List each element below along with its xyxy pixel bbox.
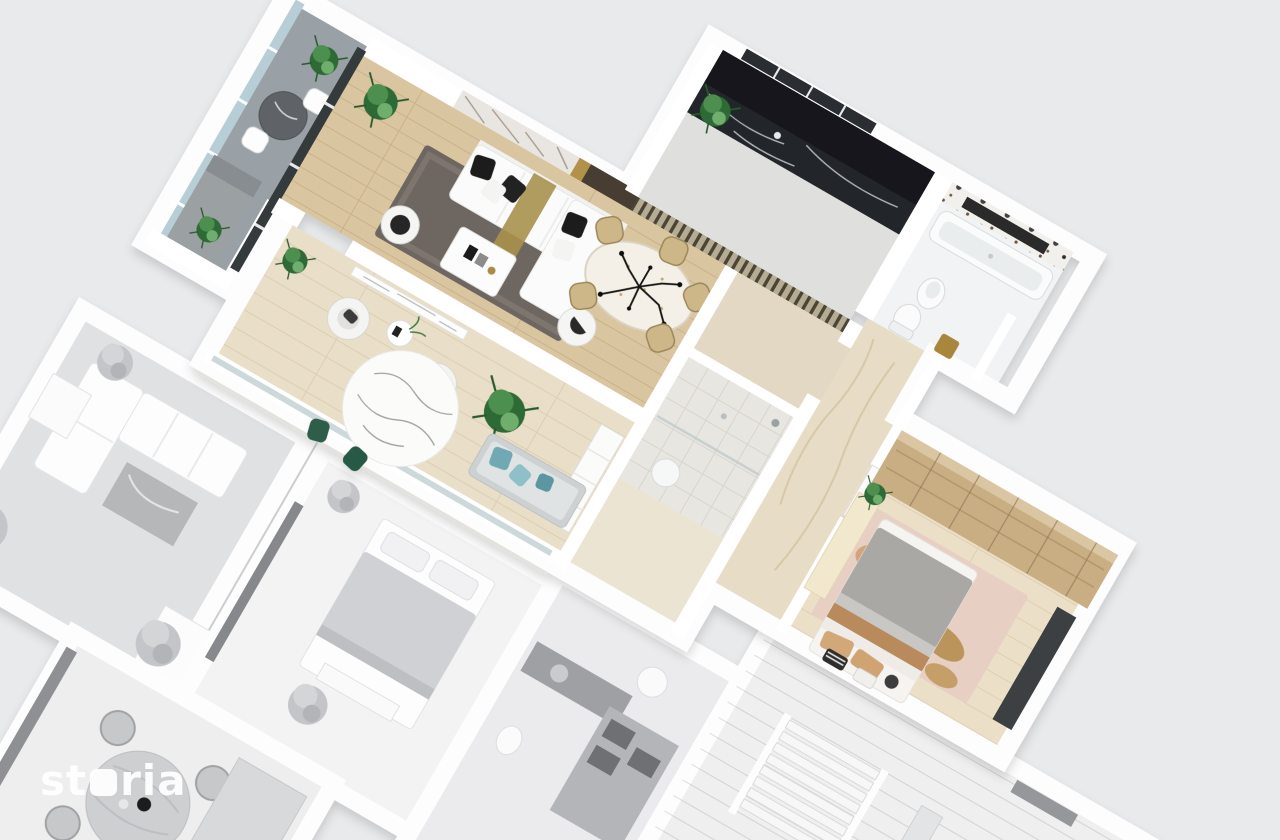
storia-watermark: stria [40,760,187,802]
floor-plan-canvas [0,0,1280,840]
storia-o-square-icon [90,769,117,796]
floor-plan-render: stria [0,0,1280,840]
watermark-part2: ria [120,760,186,802]
watermark-part1: st [40,760,87,802]
